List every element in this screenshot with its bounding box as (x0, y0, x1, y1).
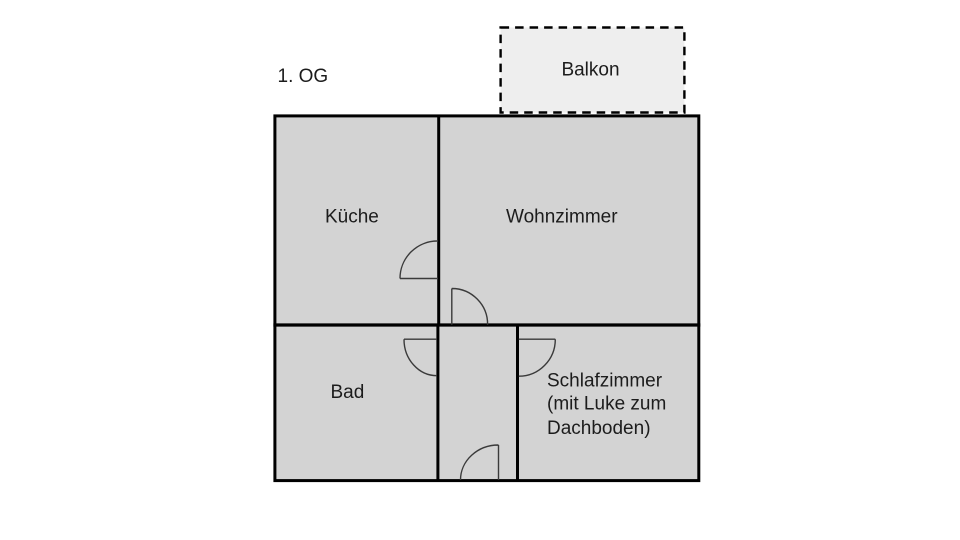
svg-text:Bad: Bad (331, 382, 365, 403)
svg-text:Wohnzimmer: Wohnzimmer (506, 207, 618, 228)
svg-text:Dachboden): Dachboden) (547, 418, 651, 439)
svg-text:1. OG: 1. OG (278, 66, 329, 87)
svg-text:(mit Luke zum: (mit Luke zum (547, 394, 666, 415)
svg-text:Balkon: Balkon (561, 60, 619, 81)
svg-text:Küche: Küche (325, 207, 379, 228)
svg-text:Schlafzimmer: Schlafzimmer (547, 371, 663, 392)
